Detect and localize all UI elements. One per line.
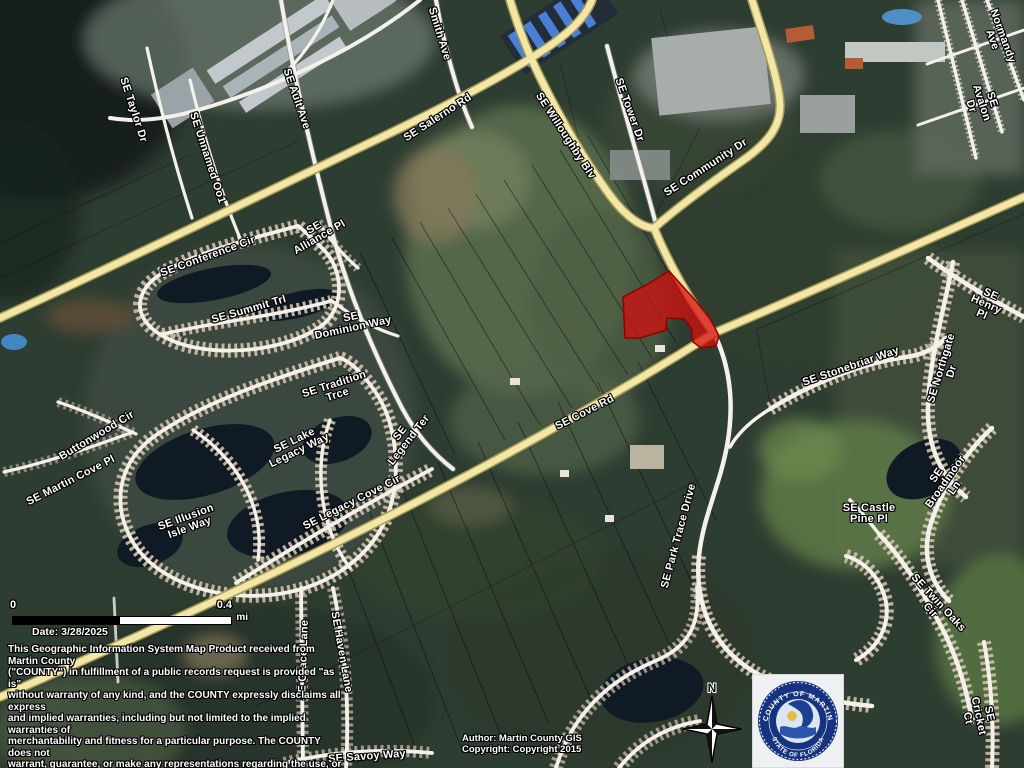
building-near-cove [630,445,664,469]
scale-unit-label: mi [236,612,248,623]
copyright-line: Copyright: Copyright 2015 [462,744,582,755]
seal-sun [787,711,797,721]
gis-map-page: N COUNTY OF MARTIN STATE OF FLORIDA SE T… [0,0,1024,768]
blue-pool [1,334,27,350]
scale-bar-graphic [12,616,232,625]
author-credit: Author: Martin County GIS Copyright: Cop… [462,733,582,755]
county-seal: COUNTY OF MARTIN STATE OF FLORIDA [752,674,844,768]
orange-roof-building [785,25,815,43]
scale-start-label: 0 [10,599,16,611]
scale-end-label: 0.4 [217,599,232,611]
disclaimer-text: This Geographic Information System Map P… [8,644,342,768]
date-label: Date: 3/28/2025 [32,626,108,638]
author-line: Author: Martin County GIS [462,733,582,744]
north-label: N [708,681,717,695]
hospital-building [651,26,771,115]
blue-pond [882,9,922,25]
scale-bar: 0 0.4 mi [10,599,232,629]
